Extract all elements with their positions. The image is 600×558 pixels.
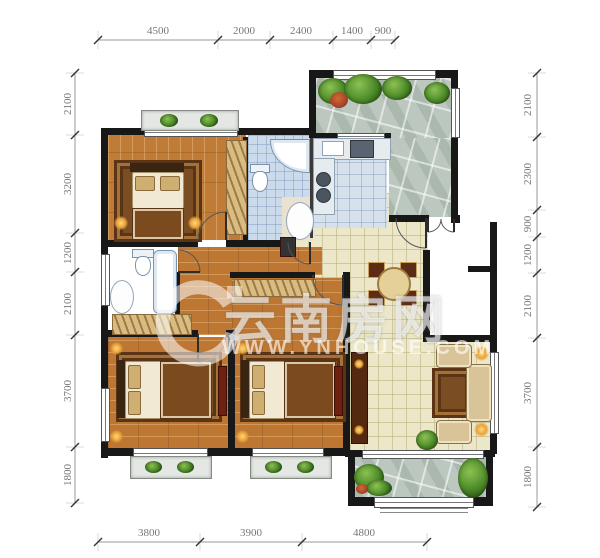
terrace-path-floor: [389, 138, 451, 217]
dim-left-5: 3700: [61, 371, 75, 411]
shower-basin: [286, 202, 314, 240]
dim-right-1: 2100: [521, 85, 535, 125]
kitchen-stove: [350, 140, 374, 158]
bedroom-3-blanket: [284, 361, 336, 419]
bedside-lamp: [188, 216, 202, 230]
side-table-lamp: [474, 422, 489, 437]
pillow: [160, 176, 180, 191]
plant-icon: [297, 461, 314, 473]
dim-left-4: 2100: [61, 284, 75, 324]
window-bedroom-2-left: [101, 388, 110, 442]
wall-path-bottom: [389, 215, 429, 222]
toilet-bowl: [252, 171, 268, 192]
dim-top-1: 4500: [138, 25, 178, 37]
plant-icon: [265, 461, 282, 473]
dim-bottom-2: 3900: [231, 527, 271, 539]
bedroom-3-dresser: [334, 366, 343, 416]
plant-icon: [458, 458, 488, 498]
wall-notch-right: [490, 222, 497, 339]
pillow: [252, 365, 265, 389]
dim-right-4: 1200: [521, 235, 535, 275]
stove-burner: [316, 188, 331, 203]
dim-bottom-1: 3800: [129, 527, 169, 539]
cabinet-lamp: [354, 425, 364, 435]
pillow: [135, 176, 155, 191]
sofa-main: [466, 364, 492, 422]
wall-terrace-left: [309, 70, 316, 138]
plant-icon: [344, 74, 382, 104]
bath-cabinet: [280, 237, 296, 257]
pillow: [252, 391, 265, 415]
plant-icon: [200, 114, 218, 127]
wall-terrace-stub-left: [309, 70, 335, 78]
plant-icon: [177, 461, 194, 473]
dim-top-2: 2000: [224, 25, 264, 37]
wall-balcony-stub-left: [348, 497, 376, 506]
flower-icon: [330, 92, 348, 108]
sliding-door-living: [362, 450, 484, 459]
plant-icon: [424, 82, 450, 104]
bedside-lamp: [114, 216, 128, 230]
watermark-url: WWW.YNHOUSE.COM: [222, 337, 494, 360]
kitchen-sink: [322, 141, 344, 156]
plant-icon: [145, 461, 162, 473]
dim-right-2: 2300: [521, 154, 535, 194]
armchair: [436, 420, 472, 444]
plant-icon: [366, 480, 392, 496]
window-terrace-right: [451, 88, 460, 138]
window-bathroom-2: [101, 254, 110, 306]
dim-top-3: 2400: [281, 25, 321, 37]
shower-basin: [110, 280, 134, 314]
floor-plan-image: 云南房网 WWW.YNHOUSE.COM 4500 2000 2400 1400…: [0, 0, 600, 558]
master-bed-headboard: [130, 163, 184, 172]
dim-right-6: 3700: [521, 373, 535, 413]
dim-right-5: 2100: [521, 286, 535, 326]
stove-burner: [316, 172, 331, 187]
master-wardrobe: [226, 140, 247, 235]
flower-box-bedroom-2: [130, 456, 212, 479]
wall-entry-stub: [453, 215, 460, 223]
cabinet-lamp: [354, 359, 364, 369]
master-bed-blanket: [132, 208, 184, 240]
pillow: [128, 365, 141, 389]
wall-notch-stub: [468, 266, 496, 272]
bedroom-2-dresser: [218, 366, 227, 416]
dim-left-2: 3200: [61, 164, 75, 204]
door-gap-bed1: [198, 240, 226, 247]
dim-left-1: 2100: [61, 84, 75, 124]
bedside-lamp: [236, 430, 249, 443]
bedroom-2-headboard: [117, 360, 125, 418]
dim-left-6: 1800: [61, 455, 75, 495]
dim-left-3: 1200: [61, 233, 75, 273]
ensuite-bathroom-floor-2: [248, 197, 282, 241]
dim-bottom-3: 4800: [344, 527, 384, 539]
dim-top-5: 900: [363, 25, 403, 37]
bedside-lamp: [110, 430, 123, 443]
dim-right-7: 1800: [521, 457, 535, 497]
pillow: [128, 391, 141, 415]
flower-box-bedroom-3: [250, 456, 332, 479]
flower-box-top: [141, 110, 239, 131]
tv-cabinet: [351, 352, 368, 444]
plant-icon: [416, 430, 438, 450]
plant-icon: [160, 114, 178, 127]
bedside-lamp: [110, 342, 123, 355]
balcony-railing: [374, 497, 474, 508]
plant-icon: [382, 76, 412, 100]
balcony-railing-outer: [380, 508, 468, 513]
flower-icon: [356, 484, 368, 494]
